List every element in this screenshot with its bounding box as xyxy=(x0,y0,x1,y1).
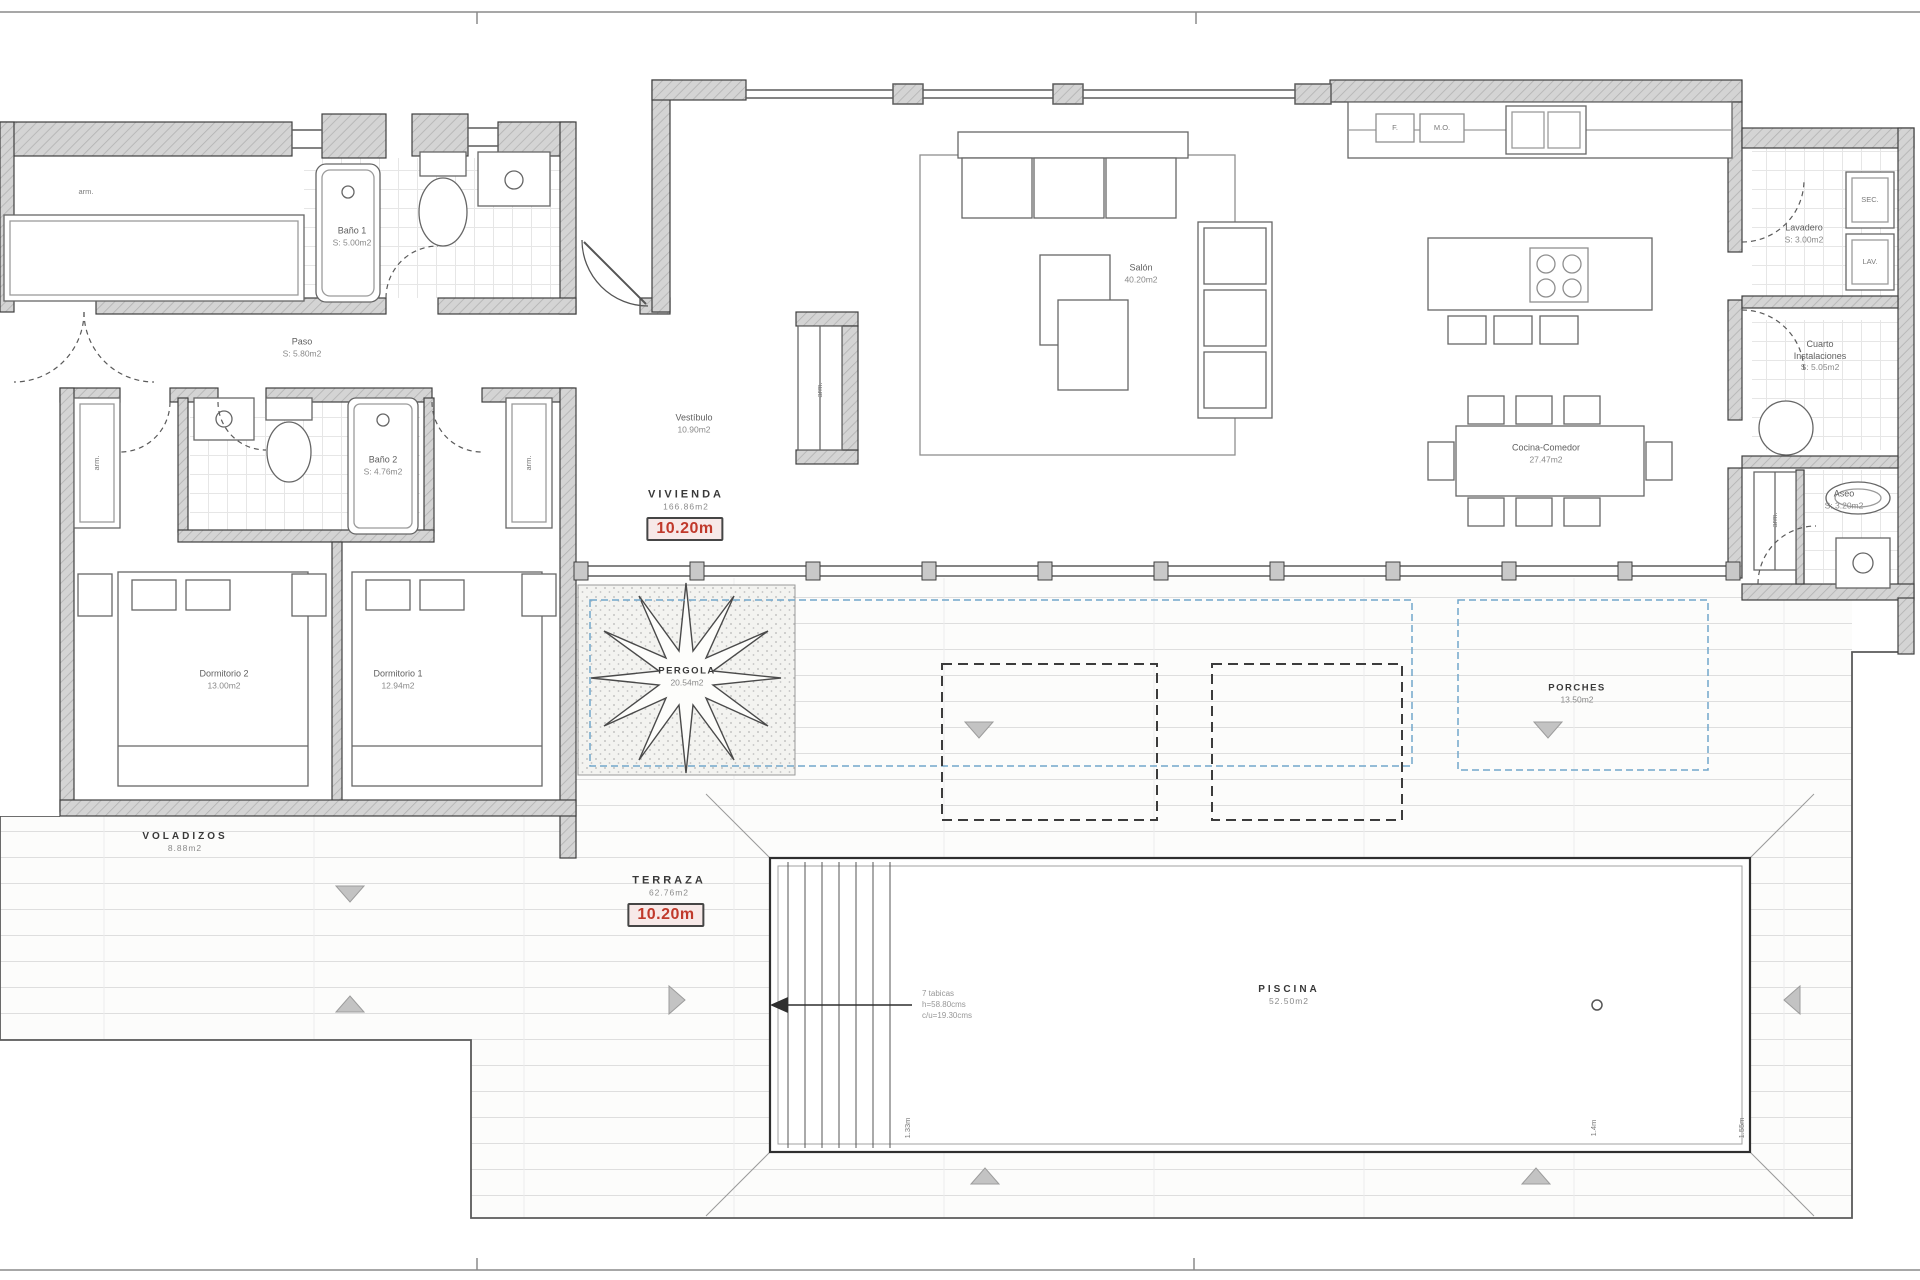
label-terraza: TERRAZA62.76m2 xyxy=(632,873,706,898)
label-piscina: PISCINA 52.50m2 xyxy=(1258,983,1320,1007)
pool-depth-label: 1.4m xyxy=(1589,1120,1599,1137)
closet-label: arm. xyxy=(92,456,102,471)
room-label-bano1: Baño 1S: 5.00m2 xyxy=(333,226,372,249)
pool-depth-label: 1.55m xyxy=(1737,1118,1747,1139)
floor-plan-sheet: Baño 1S: 5.00m2 PasoS: 5.80m2 Baño 2S: 4… xyxy=(0,0,1920,1280)
pool-marker xyxy=(1592,1000,1602,1010)
floor-plan-drawing xyxy=(0,0,1920,1280)
pool-stairs-note: 7 tabicas h=58.80cms c/u=19.30cms xyxy=(922,989,972,1021)
room-label-cocina-comedor: Cocina-Comedor27.47m2 xyxy=(1512,443,1580,466)
room-label-aseo: AseoS: 3.20m2 xyxy=(1825,489,1864,512)
room-label-salon: Salón40.20m2 xyxy=(1124,263,1157,286)
label-pergola: PERGOLA20.54m2 xyxy=(658,665,715,688)
appliance-label-lavadora: LAV. xyxy=(1862,257,1877,267)
label-vivienda: VIVIENDA166.86m2 xyxy=(648,487,724,512)
room-label-bano2: Baño 2S: 4.76m2 xyxy=(364,455,403,478)
label-voladizos: VOLADIZOS 8.88m2 xyxy=(142,830,227,854)
room-label-vestibulo: Vestíbulo10.90m2 xyxy=(675,413,712,436)
closet-label: arm. xyxy=(815,383,825,398)
closet-label: arm. xyxy=(1770,513,1780,528)
closet-label: arm. xyxy=(524,456,534,471)
dimension-terraza-width: 10.20m xyxy=(627,903,704,927)
room-label-lavadero: LavaderoS: 3.00m2 xyxy=(1785,223,1824,246)
appliance-label-secadora: SEC. xyxy=(1861,195,1879,205)
room-label-dormitorio2: Dormitorio 213.00m2 xyxy=(199,669,248,692)
closet-label: arm. xyxy=(79,187,94,197)
appliance-label-micro-oven: M.O. xyxy=(1434,123,1450,133)
dimension-vivienda-width: 10.20m xyxy=(646,517,723,541)
room-label-dormitorio1: Dormitorio 112.94m2 xyxy=(373,669,422,692)
label-porches: PORCHES13.50m2 xyxy=(1548,682,1605,705)
pool-depth-label: 1.33m xyxy=(903,1118,913,1139)
room-label-paso: PasoS: 5.80m2 xyxy=(283,337,322,360)
appliance-label-fridge: F. xyxy=(1392,123,1398,133)
room-label-cuarto-instalaciones: Cuarto Instalaciones S: 5.05m2 xyxy=(1794,339,1847,373)
